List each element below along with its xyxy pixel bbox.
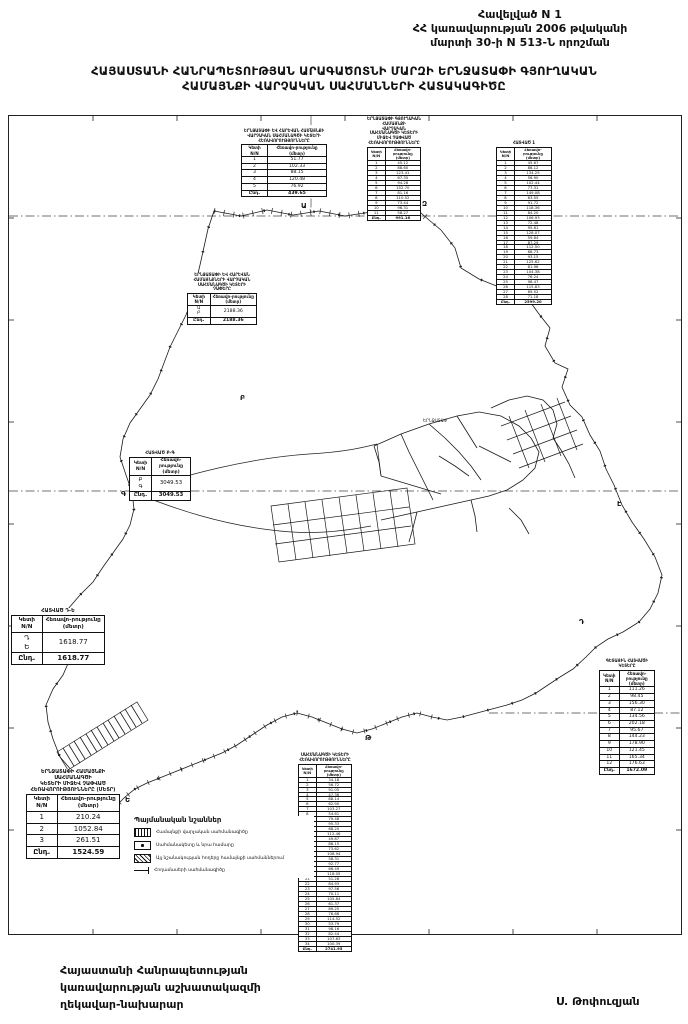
table-row: 9178.90 bbox=[600, 741, 655, 748]
table-row: ԴԵ1618.77 bbox=[12, 632, 105, 653]
legend-item-label: Այլ նշանակության հողերը համայնքի սահմանն… bbox=[156, 856, 284, 862]
legend-item: Համայնքի վարչական սահմանագիծը bbox=[134, 828, 314, 837]
legend-item-label: Հողամասերի սահմանագիծը bbox=[154, 868, 225, 874]
col-distance: Հեռավո-րությունը (մետր) bbox=[210, 294, 256, 306]
distance-table: ԵՐՆՋԱՏԱՓԻ ԵՎ ՀԱՐԵՎԱՆ ՀԱՄԱՅՆՔԻՎԱՐՉԱԿԱՆ ՍԱ… bbox=[241, 129, 327, 197]
parcel-grid-northeast bbox=[501, 398, 583, 468]
table-total-row: Ընդ.2599.20 bbox=[497, 300, 552, 305]
table-row: 2102.33 bbox=[242, 163, 327, 170]
table-caption: ԵՐՆՋԱՏԱՓԻ ՀԱՄԱՅՆՔԻ ՍԱՀՄԱՆԱԳԾԻԿԵՏԵՐԻ ՄԻՋԵ… bbox=[26, 769, 120, 793]
signature-line-2: կառավարության աշխատակազմի bbox=[60, 979, 261, 996]
distance-table: ԳԵՏԱՅԻՆ ՀԱՏՎԱԾԻԿԵՏԵՐԸԿետի N/NՀեռավո-րութ… bbox=[599, 659, 655, 775]
table-total-row: Ընդ.439.65 bbox=[242, 190, 327, 197]
col-distance: Հեռավո-րությունը (մետր) bbox=[42, 616, 104, 633]
line-symbol-icon bbox=[134, 867, 149, 874]
table-row: 10121.45 bbox=[600, 747, 655, 754]
table-row: 576.92 bbox=[242, 183, 327, 190]
table-row: 1210.24 bbox=[27, 811, 120, 823]
marker-symbol-icon bbox=[134, 841, 151, 850]
vertex-letter: Ա bbox=[301, 202, 307, 210]
map-legend: Պայմանական նշաններ Համայնքի վարչական սահ… bbox=[134, 816, 314, 878]
table-row: 11165.34 bbox=[600, 754, 655, 761]
table-total-row: Ընդ.2188.36 bbox=[188, 318, 257, 325]
legend-item: Սահմանակետը և նրա համարը bbox=[134, 841, 314, 850]
table-row: 5134.56 bbox=[600, 714, 655, 721]
table-row: 4120.48 bbox=[242, 177, 327, 184]
table-row: 3156.30 bbox=[600, 700, 655, 707]
col-point-number: Կետի N/N bbox=[12, 616, 43, 633]
table-caption: ՀԱՏՎԱԾ Դ-Ե bbox=[11, 608, 105, 614]
legend-item: Այլ նշանակության հողերը համայնքի սահմանն… bbox=[134, 854, 314, 863]
table-total-row: Ընդ.2741.95 bbox=[299, 947, 352, 952]
appendix-number: Հավելված N 1 bbox=[360, 8, 680, 22]
table-caption: ՍԱՀՄԱՆԱԳԾԻ ԿԵՏԵՐԻՀԵՌԱՎՈՐՈՒԹՅՈՒՆՆԵՐԸ bbox=[298, 753, 352, 763]
decree-number-line: մարտի 30-ի N 513-Ն որոշման bbox=[360, 36, 680, 50]
signer-name: Ս. Թոփուզյան bbox=[556, 995, 640, 1008]
table-row: ԲԳ3049.53 bbox=[130, 476, 191, 492]
vertex-letter: Դ bbox=[579, 618, 585, 626]
col-point-number: Կետի N/N bbox=[27, 795, 58, 812]
col-point-number: Կետի N/N bbox=[299, 764, 317, 777]
legend-items: Համայնքի վարչական սահմանագիծըՍահմանակետը… bbox=[134, 828, 314, 874]
table-caption: ՀԱՏՎԱԾ Բ-Գ bbox=[129, 451, 191, 456]
col-distance: Հեռավո-րությունը (մետր) bbox=[57, 795, 119, 812]
table-total-row: Ընդ.1672.09 bbox=[600, 768, 655, 775]
table-row: 1111.26 bbox=[600, 687, 655, 694]
col-distance: Հեռավո-րությունը (մետր) bbox=[385, 147, 420, 160]
signature-block: Հայաստանի Հանրապետության կառավարության ա… bbox=[60, 962, 261, 1013]
distance-table: ՀԱՏՎԱԾ Բ-ԳԿետի N/NՀեռավո-րությունը (մետր… bbox=[129, 451, 191, 501]
decree-year-line: ՀՀ կառավարության 2006 թվականի bbox=[360, 22, 680, 36]
parcel-grid-southwest bbox=[271, 488, 415, 562]
settlement-streets bbox=[374, 396, 575, 542]
legend-title: Պայմանական նշաններ bbox=[134, 816, 314, 824]
col-point-number: Կետի N/N bbox=[130, 458, 152, 476]
table-row: 151.77 bbox=[242, 156, 327, 163]
table-row: 8144.23 bbox=[600, 734, 655, 741]
table-row: 388.15 bbox=[242, 170, 327, 177]
title-line-1: ՀԱՅԱՍՏԱՆԻ ՀԱՆՐԱՊԵՏՈՒԹՅԱՆ ԱՐԱԳԱԾՈՏՆԻ ՄԱՐԶ… bbox=[24, 64, 664, 79]
legend-item-label: Համայնքի վարչական սահմանագիծը bbox=[156, 830, 248, 836]
table-row: 298.45 bbox=[600, 694, 655, 701]
vertex-letter: Բ bbox=[240, 394, 245, 402]
col-distance: Հեռավո-րությունը (մետր) bbox=[268, 145, 327, 157]
vertex-letter: Է bbox=[617, 500, 622, 508]
table-total-row: Ընդ.3049.53 bbox=[130, 491, 191, 500]
vertex-letter: Թ bbox=[365, 734, 372, 742]
table-row: 3261.51 bbox=[27, 835, 120, 847]
distance-table: ԵՐՆՋԱՏԱՓԻ ՀԱՄԱՅՆՔԻ ՍԱՀՄԱՆԱԳԾԻԿԵՏԵՐԻ ՄԻՋԵ… bbox=[26, 769, 120, 859]
table-total-row: Ընդ.1618.77 bbox=[12, 653, 105, 665]
scanned-cadastral-sheet: Հավելված N 1 ՀՀ կառավարության 2006 թվակա… bbox=[0, 0, 688, 1024]
vertex-letter: Զ bbox=[422, 200, 427, 208]
decree-reference: Հավելված N 1 ՀՀ կառավարության 2006 թվակա… bbox=[360, 8, 680, 50]
boundary-symbol-icon bbox=[134, 828, 151, 837]
distance-table: ՀԱՏՎԱԾ 1Կետի N/NՀեռավո-րությունը (մետր)1… bbox=[496, 141, 552, 305]
col-distance: Հեռավո-րությունը (մետր) bbox=[515, 147, 552, 160]
table-caption: ԳԵՏԱՅԻՆ ՀԱՏՎԱԾԻԿԵՏԵՐԸ bbox=[599, 659, 655, 669]
table-caption: ՀԱՏՎԱԾ 1 bbox=[496, 141, 552, 146]
distance-table: ԵՐՆՋԱՏԱՓԻ ԳՅՈՒՂԱԿԱՆ ՀԱՄԱՅՆՔԻՎԱՐՉԱԿԱՆ ՍԱՀ… bbox=[367, 117, 421, 221]
table-row: ԱԲ2188.36 bbox=[188, 305, 257, 317]
col-point-number: Կետի N/N bbox=[188, 294, 211, 306]
col-point-number: Կետի N/N bbox=[600, 670, 620, 687]
legend-item: Հողամասերի սահմանագիծը bbox=[134, 867, 314, 874]
community-boundary bbox=[46, 210, 662, 805]
col-distance: Հեռավո-րությունը (մետր) bbox=[152, 458, 191, 476]
distance-table: ԵՐՆՋԱՏԱՓԻ ԵՎ ՀԱՐԵՎԱՆՀԱՄԱՅՆՔՆԵՐԻ ՎԱՐՉԱԿԱՆ… bbox=[187, 273, 257, 325]
table-row: 795.67 bbox=[600, 727, 655, 734]
table-row: 21052.84 bbox=[27, 823, 120, 835]
table-caption: ԵՐՆՋԱՏԱՓԻ ԵՎ ՀԱՐԵՎԱՆՀԱՄԱՅՆՔՆԵՐԻ ՎԱՐՉԱԿԱՆ… bbox=[187, 273, 257, 292]
legend-item-label: Սահմանակետը և նրա համարը bbox=[156, 843, 234, 849]
boundary-ticked-bottom bbox=[117, 713, 432, 805]
table-caption: ԵՐՆՋԱՏԱՓԻ ԳՅՈՒՂԱԿԱՆ ՀԱՄԱՅՆՔԻՎԱՐՉԱԿԱՆ ՍԱՀ… bbox=[367, 117, 421, 146]
table-row: 12176.63 bbox=[600, 761, 655, 768]
signature-line-3: ղեկավար-նախարար bbox=[60, 996, 261, 1013]
table-row: 6202.18 bbox=[600, 721, 655, 728]
page-title: ՀԱՅԱՍՏԱՆԻ ՀԱՆՐԱՊԵՏՈՒԹՅԱՆ ԱՐԱԳԱԾՈՏՆԻ ՄԱՐԶ… bbox=[24, 64, 664, 94]
col-point-number: Կետի N/N bbox=[242, 145, 268, 157]
table-row: 487.12 bbox=[600, 707, 655, 714]
settlement-name-label: ԵՐՆՋԱՏԱՓ bbox=[423, 418, 448, 423]
col-distance: Հեռավո-րությունը (մետր) bbox=[619, 670, 654, 687]
col-distance: Հեռավո-րությունը (մետր) bbox=[316, 764, 351, 777]
col-point-number: Կետի N/N bbox=[368, 147, 386, 160]
title-line-2: ՀԱՄԱՅՆՔԻ ՎԱՐՉԱԿԱՆ ՍԱՀՄԱՆՆԵՐԻ ՀԱՏԱԿԱԳԻԾԸ bbox=[24, 79, 664, 94]
table-total-row: Ընդ.991.16 bbox=[368, 215, 421, 220]
signature-line-1: Հայաստանի Հանրապետության bbox=[60, 962, 261, 979]
cadastral-map-frame: ԵՐՆՋԱՏԱՓ ԱԶԲԳԸԵԹԴԷ ԵՐՆՋԱՏԱՓԻ ԵՎ ՀԱՐԵՎԱՆ … bbox=[8, 115, 682, 935]
boundary-vertex-dots bbox=[46, 210, 662, 805]
col-point-number: Կետի N/N bbox=[497, 147, 515, 160]
parcel-symbol-icon bbox=[134, 854, 151, 863]
hatched-strip bbox=[57, 702, 148, 770]
vertex-letter: Գ bbox=[121, 490, 127, 498]
vertex-letter: Ե bbox=[125, 796, 130, 804]
distance-table: ՀԱՏՎԱԾ Դ-ԵԿետի N/NՀեռավո-րությունը (մետր… bbox=[11, 608, 105, 665]
table-caption: ԵՐՆՋԱՏԱՓԻ ԵՎ ՀԱՐԵՎԱՆ ՀԱՄԱՅՆՔԻՎԱՐՉԱԿԱՆ ՍԱ… bbox=[241, 129, 327, 143]
table-total-row: Ընդ.1524.59 bbox=[27, 847, 120, 859]
